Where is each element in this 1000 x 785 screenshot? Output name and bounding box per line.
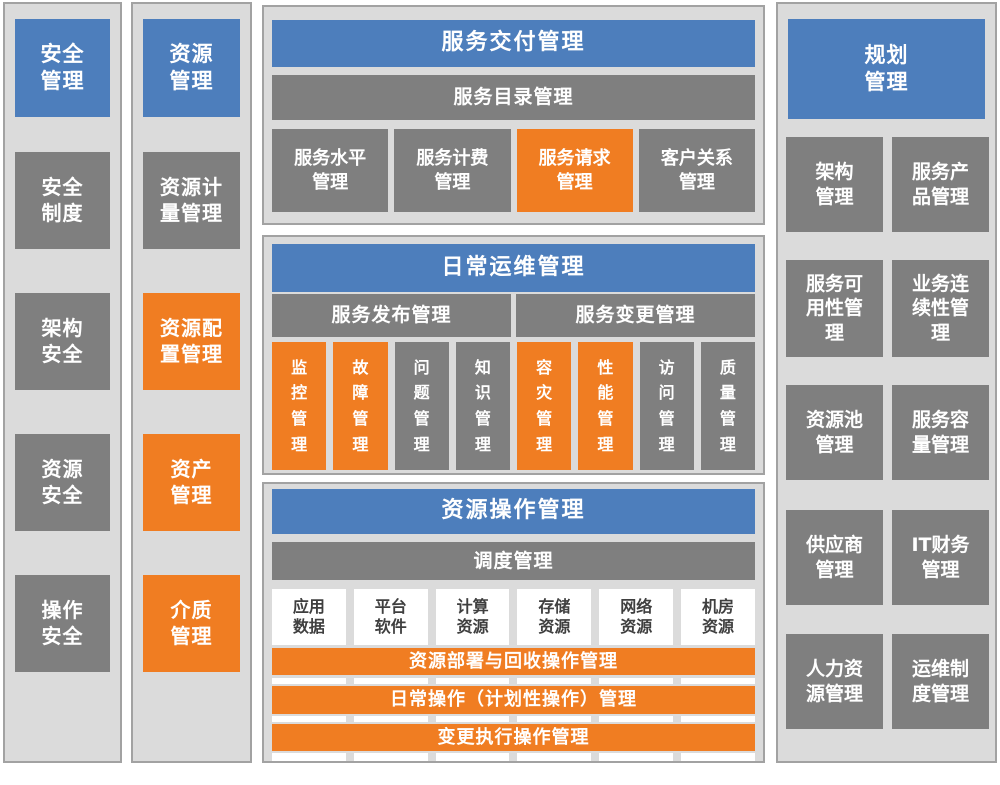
box-resource-pool: 资源池 管理: [786, 385, 883, 480]
itsm-framework-diagram: 安全 管理 安全 制度 架构 安全 资源 安全 操作 安全 资源 管理 资源计 …: [0, 0, 1000, 785]
bar-service-release: 服务发布管理: [272, 294, 511, 337]
service-delivery-title: 服务交付管理: [272, 20, 755, 67]
column-separator: [599, 753, 673, 761]
daily-ops-bars: 服务发布管理 服务变更管理: [272, 294, 755, 337]
column-separator: [517, 716, 591, 722]
box-disaster-recovery: 容灾管理: [517, 342, 571, 470]
column-separator-row: [272, 753, 755, 761]
bar-service-catalog: 服务目录管理: [272, 75, 755, 120]
box-resource-security: 资源 安全: [15, 434, 110, 531]
box-disaster-recovery-label: 容灾管理: [535, 355, 553, 457]
band-deployment-recycle-ops: 资源部署与回收操作管理: [272, 648, 755, 675]
resource-panel-title: 资源 管理: [143, 19, 240, 117]
box-operation-security: 操作 安全: [15, 575, 110, 672]
box-app-data: 应用 数据: [272, 589, 346, 645]
resource-ops-panel: 资源操作管理 调度管理 应用 数据 平台 软件 计算 资源 存储 资源 网络 资…: [262, 482, 765, 763]
column-separator: [517, 753, 591, 761]
box-platform-software: 平台 软件: [354, 589, 428, 645]
resource-types-row: 应用 数据 平台 软件 计算 资源 存储 资源 网络 资源 机房 资源: [272, 589, 755, 645]
resource-panel: 资源 管理 资源计 量管理 资源配 置管理 资产 管理 介质 管理: [131, 2, 252, 763]
column-separator: [436, 753, 510, 761]
column-separator: [681, 678, 755, 684]
box-security-policy: 安全 制度: [15, 152, 110, 249]
box-supplier: 供应商 管理: [786, 510, 883, 605]
column-separator: [436, 678, 510, 684]
security-panel-title: 安全 管理: [15, 19, 110, 117]
box-media-management: 介质 管理: [143, 575, 240, 672]
column-separator: [272, 716, 346, 722]
bar-service-change: 服务变更管理: [516, 294, 755, 337]
service-delivery-panel: 服务交付管理 服务目录管理 服务水平 管理 服务计费 管理 服务请求 管理 客户…: [262, 5, 765, 225]
box-resource-configuration: 资源配 置管理: [143, 293, 240, 390]
box-architecture-mgmt: 架构 管理: [786, 137, 883, 232]
column-separator: [272, 753, 346, 761]
column-separator: [436, 716, 510, 722]
box-access: 访问管理: [640, 342, 694, 470]
column-separator: [681, 753, 755, 761]
box-service-availability: 服务可 用性管 理: [786, 260, 883, 357]
box-knowledge-label: 知识管理: [474, 355, 492, 457]
box-problem-label: 问题管理: [412, 355, 430, 457]
box-human-resources: 人力资 源管理: [786, 634, 883, 729]
box-incident-label: 故障管理: [351, 355, 369, 457]
box-access-label: 访问管理: [657, 355, 675, 457]
box-resource-metering: 资源计 量管理: [143, 152, 240, 249]
column-separator: [354, 678, 428, 684]
box-monitoring-label: 监控管理: [290, 355, 308, 457]
box-performance: 性能管理: [578, 342, 632, 470]
column-separator: [599, 716, 673, 722]
column-separator-row: [272, 716, 755, 722]
security-panel: 安全 管理 安全 制度 架构 安全 资源 安全 操作 安全: [3, 2, 122, 763]
column-separator: [354, 716, 428, 722]
box-architecture-security: 架构 安全: [15, 293, 110, 390]
bar-scheduling: 调度管理: [272, 542, 755, 580]
band-daily-planned-ops: 日常操作（计划性操作）管理: [272, 686, 755, 714]
daily-ops-row: 监控管理 故障管理 问题管理 知识管理 容灾管理 性能管理 访问管理 质量管理: [272, 342, 755, 470]
column-separator: [517, 678, 591, 684]
box-service-product: 服务产 品管理: [892, 137, 989, 232]
column-separator: [681, 716, 755, 722]
box-incident: 故障管理: [333, 342, 387, 470]
box-performance-label: 性能管理: [596, 355, 614, 457]
box-datacenter-resource: 机房 资源: [681, 589, 755, 645]
box-quality: 质量管理: [701, 342, 755, 470]
box-quality-label: 质量管理: [719, 355, 737, 457]
daily-ops-panel: 日常运维管理 服务发布管理 服务变更管理 监控管理 故障管理 问题管理 知识管理…: [262, 235, 765, 475]
planning-panel-title: 规划 管理: [788, 19, 985, 119]
box-service-level: 服务水平 管理: [272, 129, 388, 212]
box-asset-management: 资产 管理: [143, 434, 240, 531]
box-service-billing: 服务计费 管理: [394, 129, 510, 212]
service-delivery-row: 服务水平 管理 服务计费 管理 服务请求 管理 客户关系 管理: [272, 129, 755, 212]
box-ops-policy: 运维制 度管理: [892, 634, 989, 729]
box-service-request: 服务请求 管理: [517, 129, 633, 212]
box-customer-relationship: 客户关系 管理: [639, 129, 755, 212]
band-change-execution-ops: 变更执行操作管理: [272, 724, 755, 751]
box-knowledge: 知识管理: [456, 342, 510, 470]
box-storage-resource: 存储 资源: [517, 589, 591, 645]
box-problem: 问题管理: [395, 342, 449, 470]
column-separator: [599, 678, 673, 684]
box-it-finance: IT财务 管理: [892, 510, 989, 605]
box-compute-resource: 计算 资源: [436, 589, 510, 645]
resource-ops-title: 资源操作管理: [272, 489, 755, 534]
box-business-continuity: 业务连 续性管 理: [892, 260, 989, 357]
box-network-resource: 网络 资源: [599, 589, 673, 645]
column-separator-row: [272, 678, 755, 684]
planning-panel: 规划 管理 架构 管理 服务产 品管理 服务可 用性管 理 业务连 续性管 理 …: [776, 2, 997, 763]
column-separator: [354, 753, 428, 761]
box-service-capacity: 服务容 量管理: [892, 385, 989, 480]
daily-ops-title: 日常运维管理: [272, 244, 755, 292]
column-separator: [272, 678, 346, 684]
box-monitoring: 监控管理: [272, 342, 326, 470]
